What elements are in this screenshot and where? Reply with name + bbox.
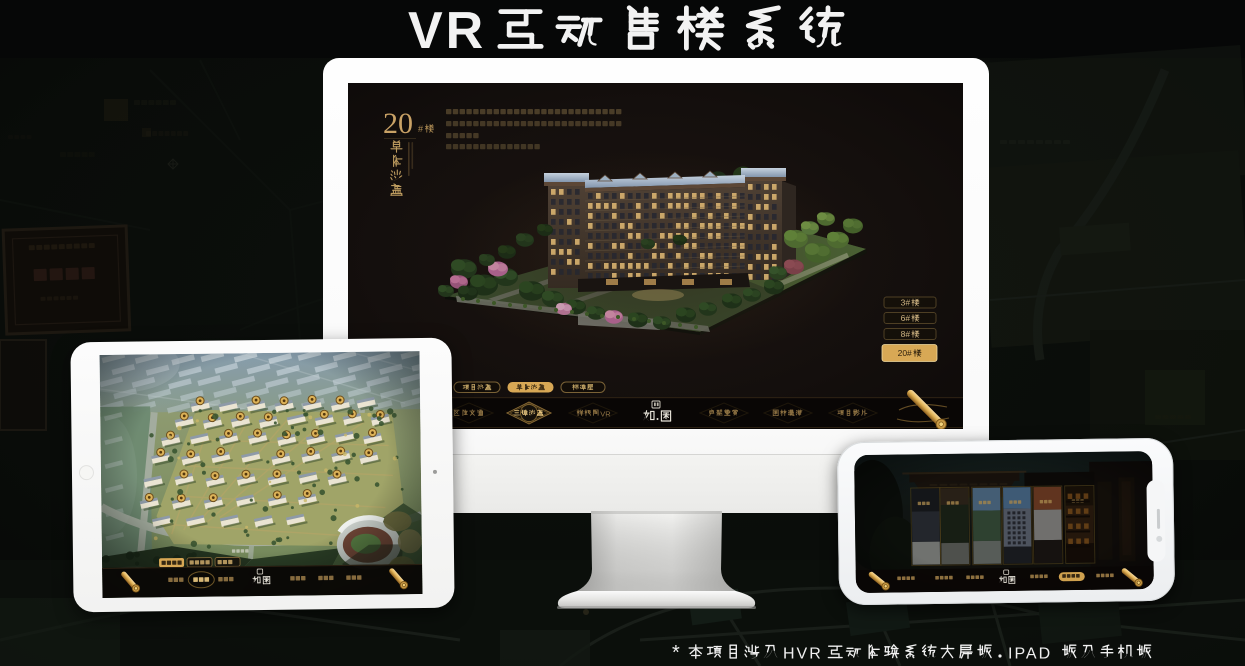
svg-text:20: 20 bbox=[383, 107, 413, 140]
svg-text:#: # bbox=[418, 124, 423, 134]
svg-text:3#: 3# bbox=[901, 298, 911, 308]
svg-text:8#: 8# bbox=[901, 329, 911, 339]
svg-text:20#: 20# bbox=[898, 348, 912, 358]
svg-text:HVR: HVR bbox=[783, 646, 823, 663]
svg-text:6#: 6# bbox=[901, 313, 911, 323]
svg-text:VR: VR bbox=[600, 410, 611, 419]
svg-text:VR: VR bbox=[408, 2, 486, 58]
svg-text:*: * bbox=[672, 642, 680, 664]
svg-text:IPAD: IPAD bbox=[1008, 646, 1052, 663]
